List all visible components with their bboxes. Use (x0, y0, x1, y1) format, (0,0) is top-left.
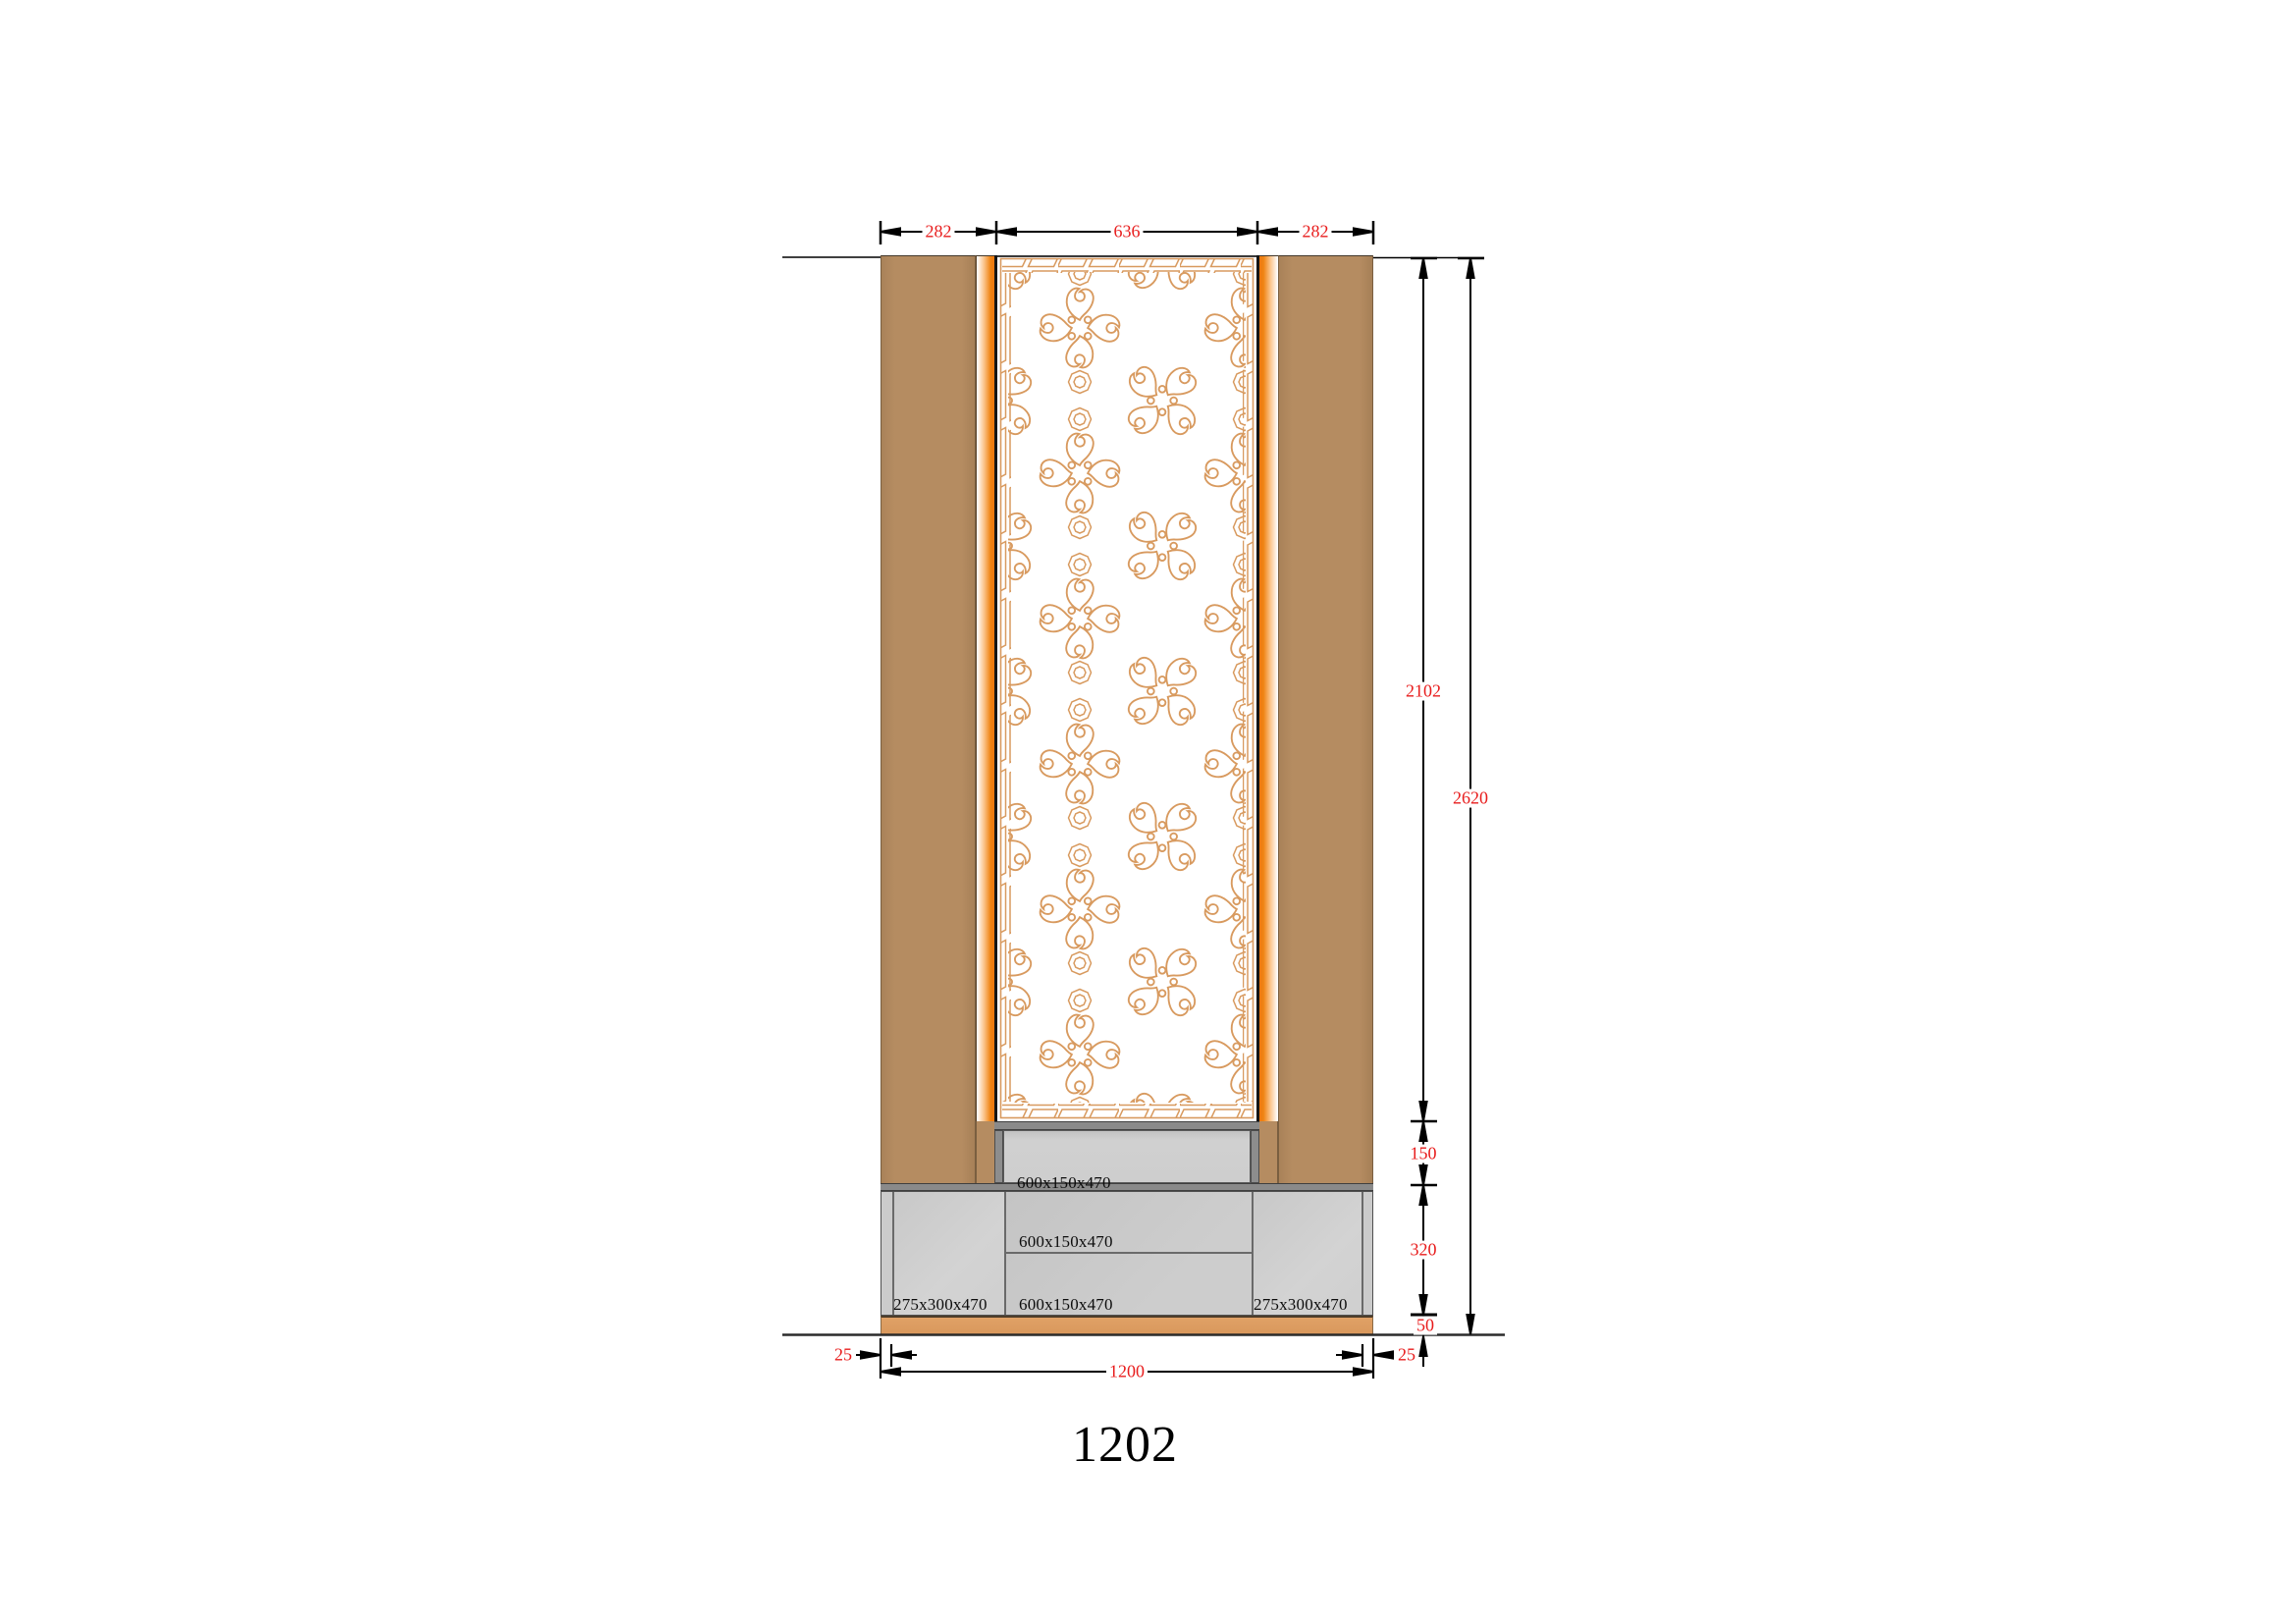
label-right-cabinet: 275x300x470 (1254, 1296, 1348, 1313)
dim-overall-width: 1200 (1106, 1363, 1148, 1381)
dim-fret-height: 2102 (1403, 682, 1444, 701)
dim-plinth-height: 50 (1414, 1317, 1437, 1335)
dim-drawer-height: 150 (1408, 1145, 1440, 1163)
dimension-lines (0, 0, 2296, 1623)
dim-top-left: 282 (923, 223, 955, 242)
dim-top-center: 636 (1111, 223, 1144, 242)
dim-side-right: 25 (1395, 1346, 1418, 1365)
dim-total-height: 2620 (1450, 789, 1491, 808)
label-left-cabinet: 275x300x470 (893, 1296, 988, 1313)
label-bottom-drawer: 600x150x470 (1019, 1296, 1113, 1313)
drawing-title: 1202 (1072, 1420, 1178, 1471)
cad-drawing-sheet: 282 636 282 2102 2620 150 320 50 25 25 1… (0, 0, 2296, 1623)
label-middle-drawer: 600x150x470 (1019, 1233, 1113, 1250)
dim-side-left: 25 (831, 1346, 855, 1365)
label-top-drawer: 600x150x470 (1017, 1174, 1111, 1191)
dim-top-right: 282 (1300, 223, 1332, 242)
dim-cabinet-height: 320 (1408, 1241, 1440, 1260)
